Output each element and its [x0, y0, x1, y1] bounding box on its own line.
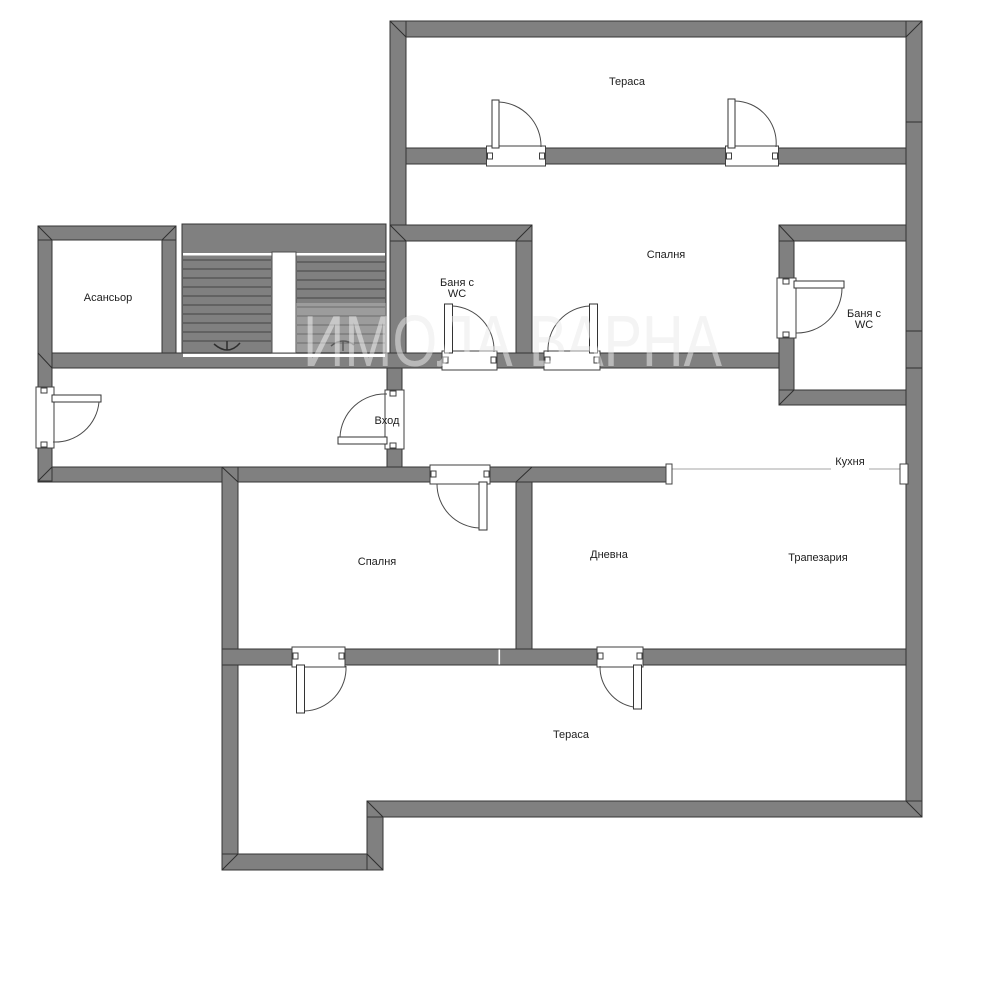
svg-text:ИМОЛА ВАРНА: ИМОЛА ВАРНА: [303, 301, 723, 382]
svg-text:Дневна: Дневна: [590, 549, 629, 561]
svg-text:Вход: Вход: [375, 415, 400, 427]
svg-text:Кухня: Кухня: [835, 456, 864, 468]
svg-text:Трапезария: Трапезария: [788, 552, 848, 564]
svg-text:Тераса: Тераса: [553, 729, 590, 741]
svg-text:Асансьор: Асансьор: [84, 292, 133, 304]
svg-text:WC: WC: [855, 319, 873, 331]
svg-text:Тераса: Тераса: [609, 76, 646, 88]
svg-text:WC: WC: [448, 288, 466, 300]
svg-text:Спалня: Спалня: [647, 249, 686, 261]
svg-text:Спалня: Спалня: [358, 556, 397, 568]
